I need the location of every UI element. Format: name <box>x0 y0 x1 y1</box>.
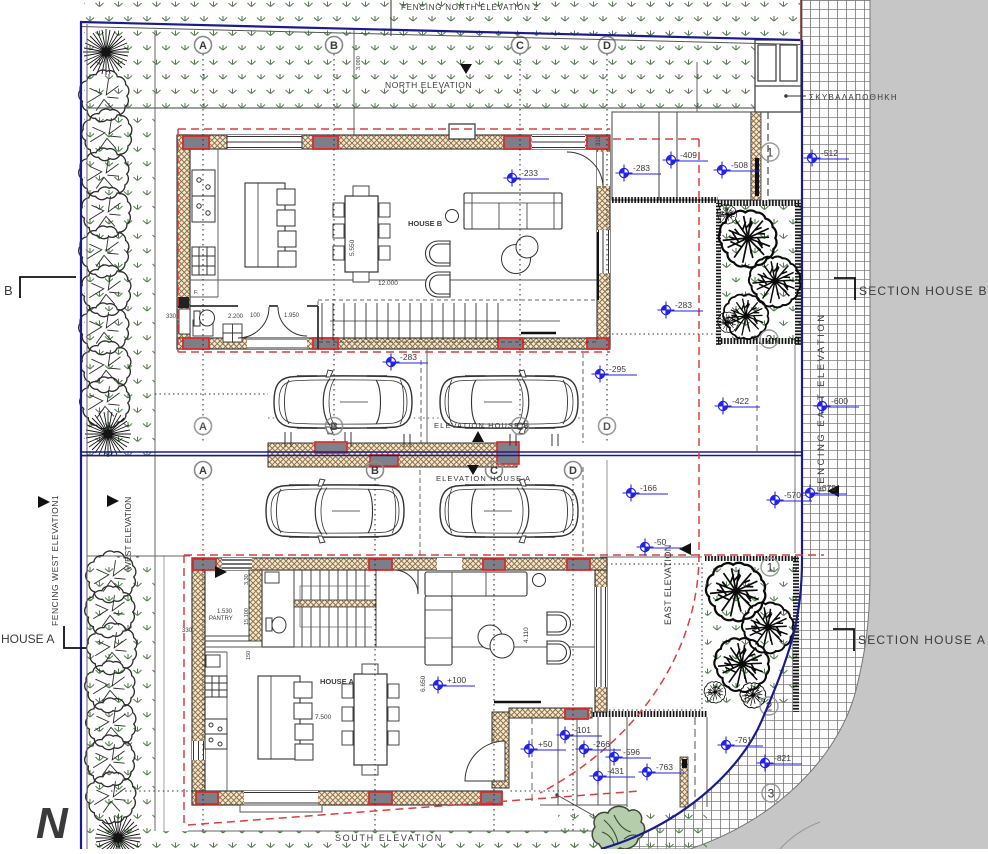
svg-text:100: 100 <box>250 313 261 319</box>
svg-text:-409: -409 <box>680 150 697 160</box>
svg-text:SECTION HOUSE B: SECTION HOUSE B <box>859 284 988 298</box>
svg-text:-678: -678 <box>819 483 836 493</box>
svg-text:7.500: 7.500 <box>315 714 332 721</box>
svg-text:1.530: 1.530 <box>217 609 233 615</box>
svg-text:D: D <box>603 40 611 52</box>
svg-text:+50: +50 <box>538 739 553 749</box>
svg-text:HOUSE A: HOUSE A <box>1 632 54 646</box>
svg-text:-431: -431 <box>607 766 624 776</box>
svg-text:A: A <box>199 40 207 52</box>
svg-text:F.: F. <box>194 290 199 296</box>
svg-text:ELEVATION HOUSE A: ELEVATION HOUSE A <box>436 474 531 483</box>
svg-text:ELEVATION HOUSE B: ELEVATION HOUSE B <box>434 421 530 430</box>
svg-text:SOUTH ELEVATION: SOUTH ELEVATION <box>335 833 443 843</box>
svg-text:2.200: 2.200 <box>228 314 244 320</box>
svg-text:-422: -422 <box>732 396 749 406</box>
svg-text:SECTION HOUSE A: SECTION HOUSE A <box>858 633 986 647</box>
svg-text:B: B <box>371 465 379 477</box>
svg-text:1: 1 <box>767 561 774 575</box>
svg-text:-233: -233 <box>521 168 538 178</box>
svg-text:N: N <box>36 799 69 848</box>
svg-text:B: B <box>330 421 338 433</box>
svg-text:-600: -600 <box>831 396 848 406</box>
svg-text:PANTRY: PANTRY <box>209 616 233 622</box>
svg-text:HOUSE B: HOUSE B <box>408 219 443 228</box>
svg-text:3.30: 3.30 <box>244 574 250 585</box>
svg-text:-821: -821 <box>774 753 791 763</box>
svg-text:-50: -50 <box>654 537 667 547</box>
svg-text:-596: -596 <box>623 747 640 757</box>
svg-text:WEST ELEVATION: WEST ELEVATION <box>123 497 133 570</box>
svg-text:-101: -101 <box>574 725 591 735</box>
svg-text:5.550: 5.550 <box>349 239 356 256</box>
svg-text:D: D <box>603 421 611 433</box>
svg-text:-512: -512 <box>821 148 838 158</box>
svg-text:1.950: 1.950 <box>284 313 300 319</box>
svg-text:C: C <box>516 40 524 52</box>
svg-text:-283: -283 <box>675 300 692 310</box>
svg-text:-266: -266 <box>593 739 610 749</box>
svg-text:A: A <box>199 465 207 477</box>
svg-text:-283: -283 <box>400 352 417 362</box>
svg-text:-295: -295 <box>609 364 626 374</box>
svg-text:FENCING NORTH ELEVATION 2: FENCING NORTH ELEVATION 2 <box>401 3 539 12</box>
svg-text:EAST ELEVATION: EAST ELEVATION <box>663 544 673 625</box>
svg-text:1: 1 <box>767 146 774 160</box>
svg-text:310: 310 <box>596 135 602 146</box>
svg-text:NORTH ELEVATION: NORTH ELEVATION <box>385 80 472 90</box>
svg-text:150: 150 <box>246 651 252 660</box>
svg-text:4.110: 4.110 <box>523 627 530 643</box>
svg-text:D: D <box>569 465 577 477</box>
svg-text:-763: -763 <box>656 762 673 772</box>
svg-text:-508: -508 <box>731 160 748 170</box>
svg-text:2: 2 <box>766 333 773 347</box>
svg-text:-283: -283 <box>633 163 650 173</box>
svg-text:12.000: 12.000 <box>378 280 398 287</box>
svg-text:3.090: 3.090 <box>356 56 362 70</box>
svg-text:B: B <box>330 40 338 52</box>
svg-text:B: B <box>4 283 13 298</box>
svg-text:+100: +100 <box>447 675 466 685</box>
svg-text:-761: -761 <box>735 735 752 745</box>
svg-text:A: A <box>199 421 207 433</box>
svg-text:FENCING WEST ELEVATION1: FENCING WEST ELEVATION1 <box>50 495 60 626</box>
svg-text:330: 330 <box>166 314 177 320</box>
svg-text:ΣΚΥΒΑΛΑΠΟΘΗΚΗ: ΣΚΥΒΑΛΑΠΟΘΗΚΗ <box>809 93 898 102</box>
svg-text:15.100: 15.100 <box>244 608 250 625</box>
svg-text:-570: -570 <box>784 490 801 500</box>
svg-text:HOUSE A: HOUSE A <box>320 677 354 686</box>
svg-text:6.650: 6.650 <box>420 675 427 692</box>
svg-text:-166: -166 <box>640 483 657 493</box>
svg-text:3: 3 <box>768 787 775 801</box>
